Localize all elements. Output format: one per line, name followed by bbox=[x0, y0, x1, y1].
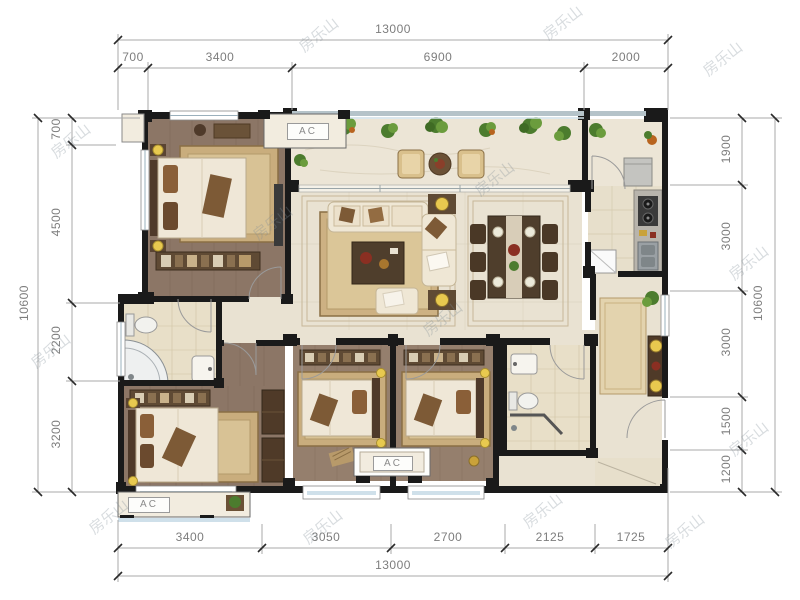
lamp bbox=[377, 439, 386, 448]
shelf bbox=[156, 252, 260, 270]
dim-bottom-seg-3: 2700 bbox=[408, 530, 488, 544]
dim-bottom-seg-2: 3050 bbox=[286, 530, 366, 544]
lamp bbox=[481, 439, 490, 448]
bed bbox=[128, 408, 218, 482]
dim-left-seg-4: 3200 bbox=[49, 394, 63, 474]
dim-right-seg-5: 1200 bbox=[719, 429, 733, 509]
dim-left-total: 10600 bbox=[17, 263, 31, 343]
lamp bbox=[153, 241, 163, 251]
living-room-furniture bbox=[320, 194, 456, 316]
dim-bottom-seg-4: 2125 bbox=[510, 530, 590, 544]
dim-left-seg-1: 700 bbox=[49, 89, 63, 169]
dim-right-seg-3: 3000 bbox=[719, 302, 733, 382]
lamp bbox=[153, 145, 163, 155]
foyer-rug bbox=[600, 298, 646, 394]
decor bbox=[469, 456, 479, 466]
dim-left-seg-2: 4500 bbox=[49, 182, 63, 262]
dim-top-seg-2: 3400 bbox=[180, 50, 260, 64]
dim-top-seg-3: 6900 bbox=[398, 50, 478, 64]
ac-label-top: AC bbox=[287, 123, 329, 140]
tv-console bbox=[274, 184, 283, 246]
dim-top-seg-1: 700 bbox=[93, 50, 173, 64]
bed bbox=[406, 378, 484, 438]
dim-right-seg-1: 1900 bbox=[719, 109, 733, 189]
dining-chair bbox=[542, 280, 558, 300]
dining-chair bbox=[542, 224, 558, 244]
floor-plan-drawing bbox=[0, 0, 800, 600]
lamp bbox=[481, 369, 490, 378]
ac-label-bottom: AC bbox=[373, 456, 413, 471]
dresser bbox=[214, 124, 250, 138]
washing-machine bbox=[624, 158, 652, 186]
dining-chair bbox=[470, 252, 486, 272]
bed bbox=[150, 158, 246, 238]
lamp bbox=[436, 294, 449, 307]
toilet bbox=[135, 317, 157, 333]
ac-label-left: AC bbox=[128, 497, 170, 513]
dining-room-furniture bbox=[470, 216, 558, 300]
bed bbox=[302, 378, 380, 438]
dining-chair bbox=[470, 280, 486, 300]
dim-left-seg-3: 2200 bbox=[49, 300, 63, 380]
dim-right-seg-2: 3000 bbox=[719, 196, 733, 276]
lamp bbox=[129, 399, 138, 408]
dim-bottom-seg-5: 1725 bbox=[591, 530, 671, 544]
floor-plan-page: 13000 700 3400 6900 2000 3400 3050 2700 … bbox=[0, 0, 800, 600]
toilet bbox=[518, 393, 538, 409]
lamp bbox=[650, 340, 662, 352]
dim-bottom-seg-1: 3400 bbox=[150, 530, 230, 544]
lamp bbox=[377, 369, 386, 378]
lamp bbox=[129, 477, 138, 486]
dining-chair bbox=[470, 224, 486, 244]
lamp bbox=[650, 380, 662, 392]
dining-chair bbox=[542, 252, 558, 272]
dim-top-seg-4: 2000 bbox=[586, 50, 666, 64]
dim-top-total: 13000 bbox=[353, 22, 433, 36]
dim-bottom-total: 13000 bbox=[353, 558, 433, 572]
lamp bbox=[436, 198, 449, 211]
dim-right-total: 10600 bbox=[751, 263, 765, 343]
